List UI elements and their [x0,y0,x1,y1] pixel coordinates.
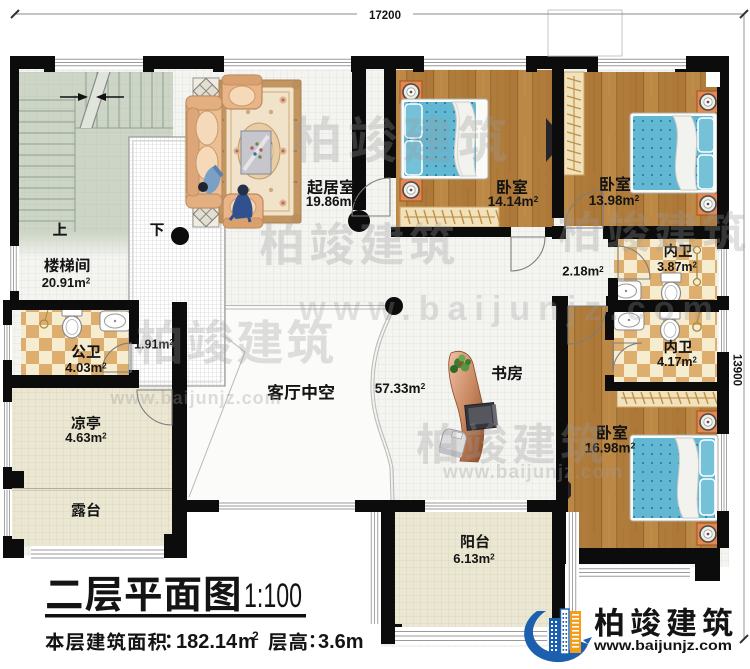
svg-text:17200: 17200 [369,10,401,22]
svg-text:14.14m2: 14.14m2 [488,194,539,209]
svg-text:19.86m2: 19.86m2 [306,194,357,209]
svg-text:13900: 13900 [731,354,743,386]
svg-text:4.17m2: 4.17m2 [657,355,697,369]
svg-text:20.91m2: 20.91m2 [42,275,91,290]
svg-text:www.baijunjz.com: www.baijunjz.com [298,290,720,328]
svg-text:6.13m2: 6.13m2 [453,551,495,566]
svg-text:www.baijunjz.com: www.baijunjz.com [593,638,732,653]
svg-text:www.baijunjz.com: www.baijunjz.com [109,388,281,408]
svg-text:13.98m2: 13.98m2 [589,193,640,208]
svg-text:2: 2 [252,629,259,643]
svg-text:57.33m2: 57.33m2 [375,381,426,396]
svg-text:1:100: 1:100 [244,577,302,615]
svg-text:www.baijunjz.com: www.baijunjz.com [442,462,623,483]
svg-text:3.6m: 3.6m [318,631,364,653]
svg-text:182.14: 182.14 [176,631,238,653]
svg-text:3.87m2: 3.87m2 [657,260,697,274]
svg-text:4.03m2: 4.03m2 [65,360,107,375]
svg-text:2.18m2: 2.18m2 [562,264,604,279]
svg-text:4.63m2: 4.63m2 [65,430,107,445]
